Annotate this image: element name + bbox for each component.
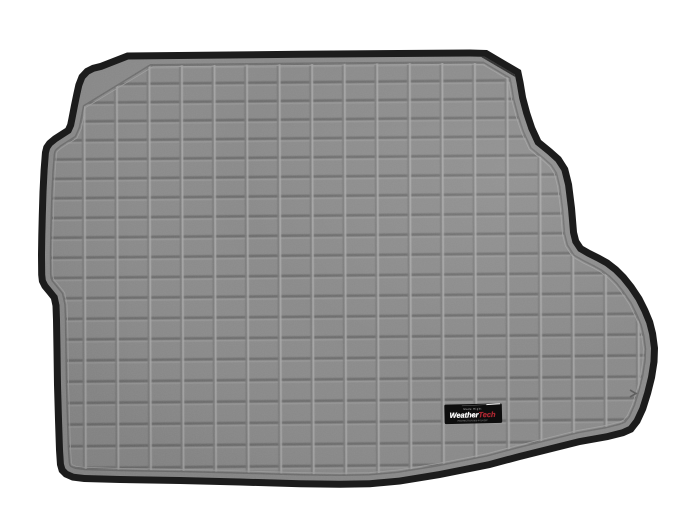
svg-text:WeatherTech: WeatherTech [449, 410, 496, 420]
